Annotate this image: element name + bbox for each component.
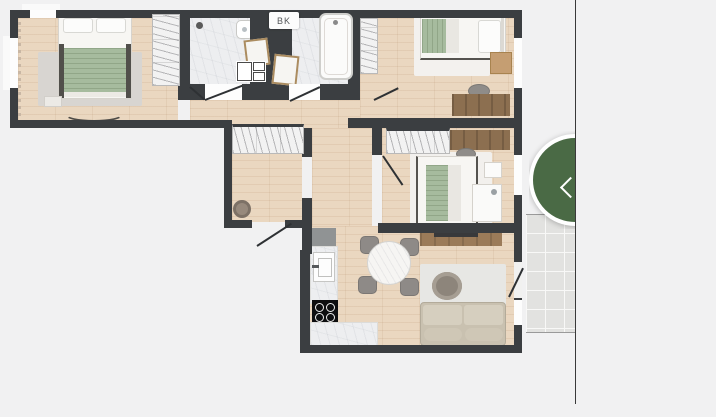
bedroom3-single-bed: [416, 156, 478, 228]
sink-basin: [318, 258, 332, 277]
bed-foot: [64, 92, 126, 97]
bed-pillow: [96, 18, 126, 33]
wall-top: [10, 10, 522, 18]
bed-headboard: [501, 18, 504, 54]
window: [30, 10, 56, 18]
bk-label: BK: [269, 12, 299, 29]
tub-faucet-icon: [333, 20, 338, 25]
shower-drain-icon: [196, 22, 203, 29]
kitchen-counter-bottom: [310, 322, 378, 346]
dining-chair: [400, 278, 419, 296]
floor-plan-viewport: BK: [0, 0, 716, 417]
faucet-icon: [312, 265, 319, 268]
bedroom3-desk: [472, 184, 502, 222]
bedroom1-double-bed: [58, 15, 132, 99]
wall-kitchen-left: [300, 250, 310, 353]
panel-toggle-button[interactable]: [529, 134, 575, 226]
bed-duvet-fold: [446, 19, 459, 53]
window: [10, 38, 18, 88]
wall-bed3-left: [372, 128, 382, 155]
washer-dryer-unit: [236, 61, 266, 82]
bedroom3-nightstand: [484, 162, 502, 178]
bedroom3-shelf: [450, 130, 510, 150]
wall-bottom: [300, 345, 522, 353]
washer-door: [237, 62, 252, 81]
bedroom1-bench: [44, 96, 62, 107]
burner-icon: [326, 303, 335, 312]
dryer-drawer: [253, 62, 265, 71]
bed-pillow: [63, 18, 93, 33]
balcony-edge-bottom: [526, 332, 575, 333]
burner-icon: [326, 313, 335, 322]
toilet-bowl: [242, 27, 247, 32]
hallway-wardrobe: [232, 124, 304, 154]
window: [514, 155, 522, 195]
bedroom1-wardrobe: [152, 14, 180, 86]
bed-blanket: [64, 48, 126, 92]
cooktop: [312, 300, 338, 324]
burner-icon: [315, 313, 324, 322]
wall-entry-stub-left: [224, 220, 252, 228]
wall-hall-left: [224, 128, 232, 228]
panel-divider: [575, 0, 576, 404]
panel-toggle-clip: [529, 131, 575, 229]
desk-lamp-icon: [491, 189, 497, 195]
bathtub: [319, 13, 353, 80]
bedroom2-nightstand: [490, 52, 512, 74]
dryer-drawer: [253, 72, 265, 81]
bedroom3-wardrobe: [386, 128, 450, 154]
bathtub-inner: [324, 18, 348, 75]
kitchen-sink: [313, 252, 335, 282]
wall-leftwing-bottom: [10, 120, 232, 128]
bed-blanket: [426, 165, 448, 221]
sofa-back-cushion: [424, 328, 462, 341]
wall-bed2-bottom: [348, 118, 522, 128]
coffee-table: [432, 272, 462, 300]
wall-bed3-bottom: [378, 223, 514, 233]
bedroom2-wardrobe: [360, 18, 378, 74]
bed-frame: [126, 44, 131, 98]
hallway-plant: [233, 200, 251, 218]
window: [514, 300, 522, 325]
corridor-b-floor: [312, 128, 372, 232]
bed-blanket: [422, 19, 446, 53]
balcony-floor: [526, 215, 575, 333]
bk-label-text: BK: [277, 16, 291, 26]
chevron-left-icon: [560, 177, 575, 198]
curtain-icon: [18, 20, 21, 116]
sofa-back-cushion: [465, 328, 503, 341]
wall-mid-lower: [302, 198, 312, 254]
dining-table: [367, 241, 411, 285]
sofa: [420, 302, 506, 346]
window: [514, 38, 522, 88]
bathroom-door-leaf: [272, 54, 300, 86]
burner-icon: [315, 303, 324, 312]
entry-door-swing: [256, 223, 291, 247]
sofa-seat-cushion: [423, 305, 462, 325]
bed-pillow: [478, 20, 501, 53]
bedroom2-desk: [452, 94, 510, 116]
bed-duvet-fold: [448, 165, 461, 221]
sofa-seat-cushion: [464, 305, 503, 325]
